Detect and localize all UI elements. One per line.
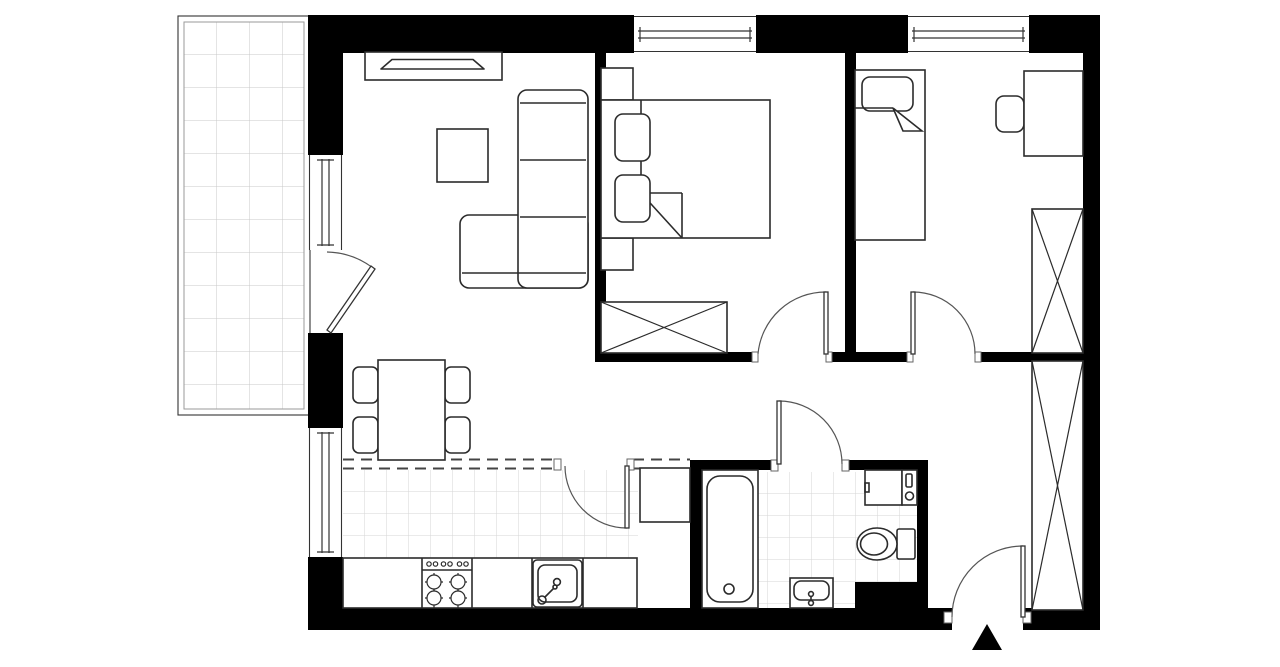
kitchen-door-leaf	[625, 466, 629, 528]
pillow	[862, 77, 913, 111]
bedroom2-door-leaf	[911, 292, 915, 354]
bathroom-door-leaf	[777, 401, 781, 464]
dining-chair	[445, 417, 470, 453]
wall-left-middle	[308, 333, 343, 428]
single-bed	[855, 70, 925, 240]
wardrobe-bedroom2	[1032, 209, 1083, 353]
wall-left-upper	[308, 15, 343, 155]
coffee-table	[437, 129, 488, 182]
wall-left-lower	[308, 557, 343, 630]
dining-table	[378, 360, 445, 460]
bedroom1-door-leaf	[824, 292, 828, 354]
desk	[1024, 71, 1083, 156]
floor-plan	[0, 0, 1280, 667]
window-bedroom-2	[908, 15, 1029, 53]
floor-plan-canvas	[0, 0, 1280, 667]
balcony-tile-grid	[184, 22, 304, 409]
wall-bathroom-top-right	[848, 460, 917, 470]
entrance-door-leaf	[1021, 546, 1025, 617]
toilet	[857, 528, 915, 560]
window-living-upper	[308, 155, 343, 250]
dining-chair	[445, 367, 470, 403]
pillow	[615, 114, 650, 161]
service-shaft-cover	[855, 582, 917, 608]
washing-machine	[865, 470, 902, 505]
nightstand	[601, 68, 633, 100]
kitchen-door-jamb-left	[554, 459, 561, 470]
wall-bathroom-right	[917, 460, 928, 608]
utility-unit	[902, 470, 917, 505]
pillow	[615, 175, 650, 222]
kitchen-floor-tiles	[343, 470, 638, 558]
dining-chair	[353, 417, 378, 453]
nightstand	[601, 238, 633, 270]
tv	[381, 60, 484, 70]
wall-bedrooms-hall-b	[832, 352, 908, 362]
kitchen-tall-cabinet	[640, 468, 690, 522]
wall-right	[1083, 15, 1100, 628]
kitchen-counter	[343, 558, 637, 608]
wall-kitchen-bathroom	[690, 460, 702, 608]
wardrobe-bedroom1	[601, 302, 727, 353]
balcony	[178, 16, 310, 415]
wall-bathroom-top-left	[702, 460, 772, 470]
desk-chair	[996, 96, 1024, 132]
wardrobe-hallway	[1032, 361, 1083, 610]
window-bedroom-1	[634, 15, 756, 53]
bathtub	[702, 470, 758, 608]
dining-chair	[353, 367, 378, 403]
double-bed	[601, 100, 770, 238]
washbasin	[790, 578, 833, 608]
window-living-lower	[308, 428, 343, 557]
